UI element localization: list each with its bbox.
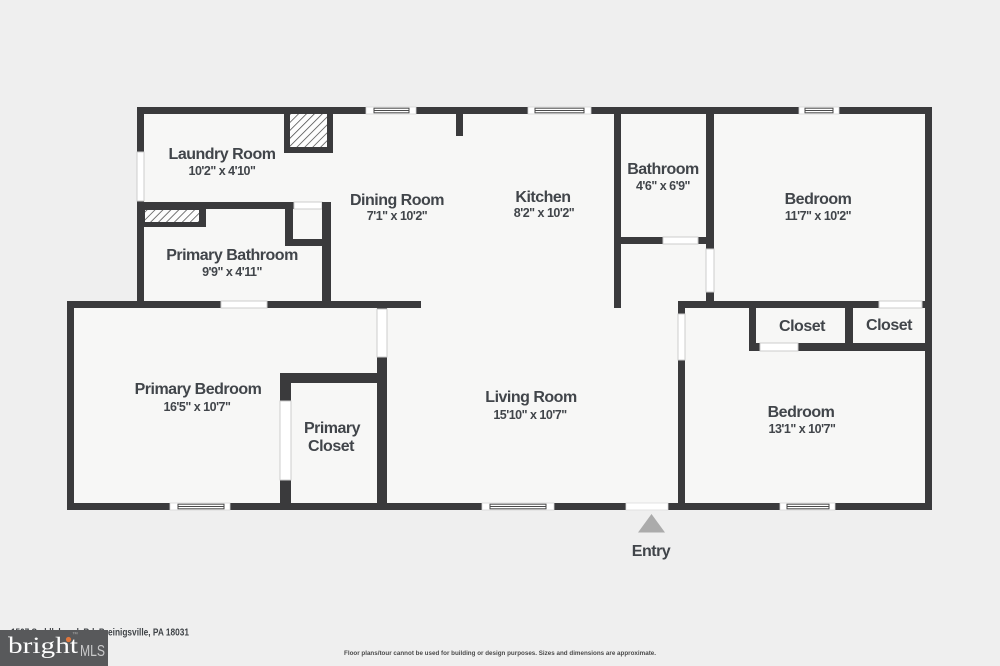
svg-text:Closet: Closet — [866, 317, 913, 334]
svg-text:Primary Bedroom: Primary Bedroom — [135, 381, 262, 398]
svg-text:8'2" x 10'2": 8'2" x 10'2" — [514, 206, 575, 220]
svg-text:7'1" x 10'2": 7'1" x 10'2" — [367, 209, 428, 223]
svg-text:bright: bright — [8, 633, 79, 658]
svg-text:Primary: Primary — [304, 420, 361, 437]
svg-text:Bedroom: Bedroom — [768, 404, 835, 421]
svg-text:4'6" x 6'9": 4'6" x 6'9" — [636, 179, 691, 193]
svg-text:Entry: Entry — [632, 543, 671, 560]
svg-text:Primary Bathroom: Primary Bathroom — [166, 247, 298, 264]
svg-text:Bedroom: Bedroom — [785, 191, 852, 208]
svg-text:10'2" x 4'10": 10'2" x 4'10" — [189, 164, 256, 178]
svg-text:Dining Room: Dining Room — [350, 192, 444, 209]
svg-text:9'9" x 4'11": 9'9" x 4'11" — [202, 265, 262, 279]
svg-text:15'10" x 10'7": 15'10" x 10'7" — [493, 408, 567, 422]
svg-text:16'5" x 10'7": 16'5" x 10'7" — [164, 400, 231, 414]
svg-text:Closet: Closet — [308, 438, 355, 455]
svg-text:Laundry Room: Laundry Room — [169, 146, 276, 163]
svg-text:Floor plans/tour cannot be use: Floor plans/tour cannot be used for buil… — [344, 650, 656, 657]
svg-text:Living Room: Living Room — [485, 389, 577, 406]
svg-text:Kitchen: Kitchen — [515, 189, 570, 206]
svg-text:MLS: MLS — [80, 643, 105, 660]
svg-text:11'7" x 10'2": 11'7" x 10'2" — [785, 209, 852, 223]
svg-text:Closet: Closet — [779, 318, 826, 335]
svg-text:einigsville, PA 18031: einigsville, PA 18031 — [108, 628, 189, 639]
svg-text:Bathroom: Bathroom — [627, 161, 699, 178]
svg-text:13'1" x 10'7": 13'1" x 10'7" — [769, 422, 836, 436]
svg-text:™: ™ — [72, 631, 78, 638]
